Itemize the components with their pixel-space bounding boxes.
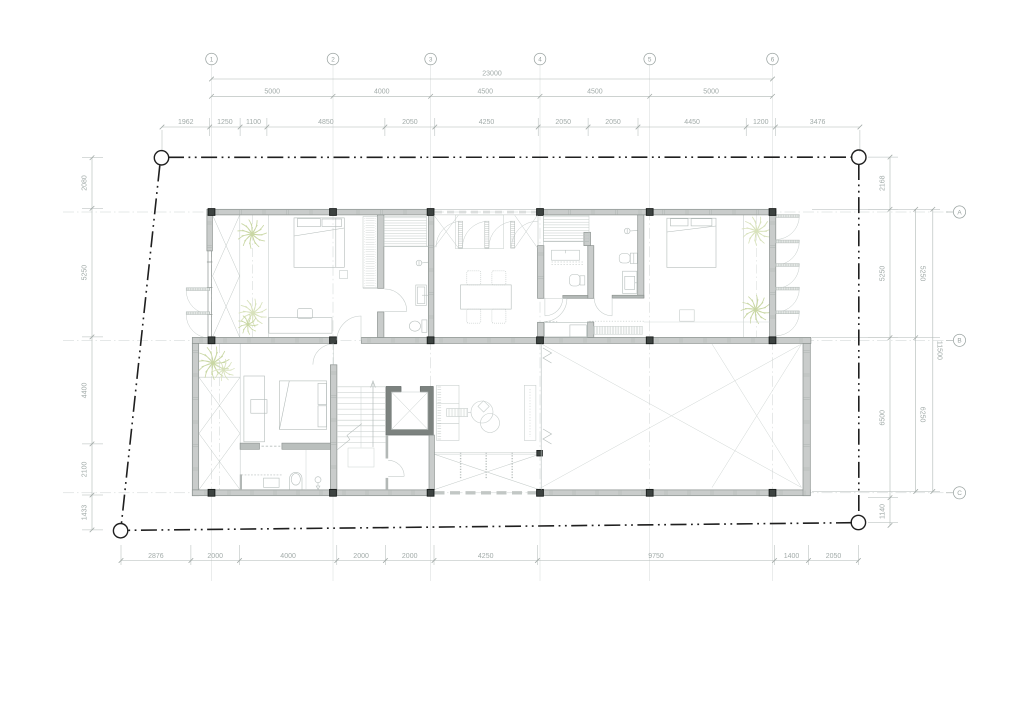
svg-text:B: B [957,338,961,345]
svg-text:5000: 5000 [703,88,719,95]
svg-text:1140: 1140 [880,504,887,519]
svg-text:1400: 1400 [784,553,800,560]
svg-text:2168: 2168 [880,175,887,191]
svg-text:5250: 5250 [82,265,89,281]
svg-text:2050: 2050 [555,119,571,126]
svg-text:4250: 4250 [478,553,494,560]
svg-text:2000: 2000 [353,553,369,560]
svg-text:4500: 4500 [587,88,603,95]
svg-text:5000: 5000 [264,88,280,95]
svg-text:4000: 4000 [374,88,390,95]
svg-text:2050: 2050 [402,119,418,126]
svg-text:2000: 2000 [207,553,223,560]
svg-text:5: 5 [648,56,652,63]
svg-text:6: 6 [771,56,775,63]
svg-text:C: C [957,490,962,497]
svg-text:4: 4 [538,56,542,63]
svg-text:3476: 3476 [810,119,826,126]
svg-text:2: 2 [331,56,335,63]
svg-text:23000: 23000 [482,71,502,78]
svg-text:9750: 9750 [648,553,664,560]
svg-text:4850: 4850 [318,119,334,126]
svg-text:5250: 5250 [880,266,887,282]
svg-text:1962: 1962 [178,119,194,126]
svg-text:4400: 4400 [82,383,89,399]
svg-text:2080: 2080 [82,175,89,191]
svg-text:4000: 4000 [280,553,296,560]
svg-text:5250: 5250 [919,266,926,282]
svg-text:6500: 6500 [880,410,887,426]
svg-text:1100: 1100 [246,119,261,126]
svg-text:4450: 4450 [684,119,700,126]
svg-text:4250: 4250 [479,119,495,126]
svg-text:11500: 11500 [936,341,943,360]
svg-text:4500: 4500 [478,88,494,95]
svg-text:6250: 6250 [919,407,926,423]
svg-text:1: 1 [210,56,214,63]
svg-text:A: A [957,209,962,216]
svg-text:2050: 2050 [605,119,621,126]
svg-text:2100: 2100 [82,462,89,478]
svg-text:1433: 1433 [82,505,89,521]
svg-text:2000: 2000 [402,553,418,560]
svg-text:2876: 2876 [148,553,164,560]
svg-text:3: 3 [429,56,433,63]
svg-text:2050: 2050 [826,553,842,560]
svg-text:1200: 1200 [753,119,769,126]
svg-text:1250: 1250 [217,119,233,126]
